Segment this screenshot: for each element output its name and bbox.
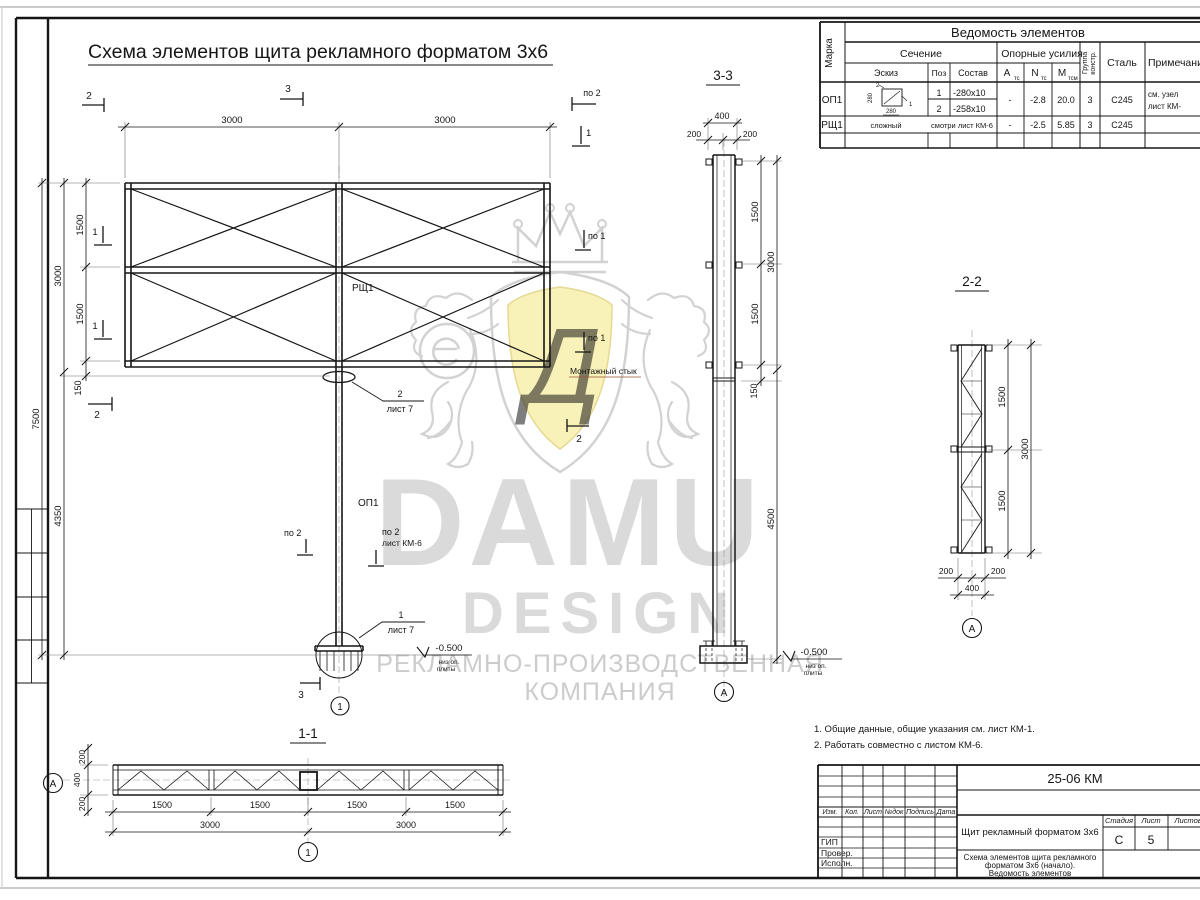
elements-table: Ведомость элементов Марка Сечение Опорны… — [820, 22, 1200, 148]
dim-1500: 1500 — [75, 303, 86, 324]
dim-150: 150 — [749, 383, 759, 398]
cell-marka: РЩ1 — [821, 120, 843, 131]
marker-1: 1 — [92, 321, 97, 332]
dim-3000: 3000 — [200, 820, 220, 830]
dim-7500: 7500 — [31, 408, 42, 429]
dim-3000: 3000 — [53, 265, 64, 286]
marker-2: 2 — [576, 434, 582, 445]
section-3-3: 3-3 400 200 200 1500 — [687, 68, 842, 702]
cell-n: -2.8 — [1030, 95, 1046, 105]
dim-200: 200 — [687, 129, 701, 139]
cell-n: -2.5 — [1030, 120, 1046, 130]
drawing-canvas: Схема элементов щита рекламного форматом… — [0, 0, 1200, 900]
page-title: Схема элементов щита рекламного форматом… — [88, 41, 548, 63]
section-2-2: 2-2 1500 1500 3000 200 — [938, 274, 1042, 638]
col-m-sub: тсм — [1068, 76, 1078, 82]
callout-sheet7: лист 7 — [388, 625, 414, 635]
note-1: 1. Общие данные, общие указания см. лист… — [814, 724, 1035, 735]
notes: 1. Общие данные, общие указания см. лист… — [814, 724, 1035, 751]
role-ispoln: Исполн. — [821, 858, 853, 868]
col-a: А — [1004, 68, 1011, 79]
sheet-desc: Ведомость элементов — [989, 869, 1071, 878]
label-montage-joint: Монтажный стык — [570, 366, 637, 376]
cell-gruppa: 3 — [1087, 95, 1092, 105]
marker-po2: по 2 — [284, 528, 301, 538]
cell-m: 5.85 — [1057, 120, 1075, 130]
col-oporn: Опорные усилия — [1001, 48, 1083, 60]
sketch-dim-280: 280 — [868, 92, 874, 103]
dim-4500: 4500 — [766, 508, 777, 529]
cell-eskiz: сложный — [870, 121, 901, 130]
cell-poz: 2 — [936, 104, 941, 114]
callout-joint: 2 лист 7 — [352, 382, 424, 414]
marker-po2-sheet: лист КМ-6 — [382, 538, 422, 548]
dim-1500: 1500 — [250, 800, 270, 810]
dim-200: 200 — [939, 566, 953, 576]
grid-bubble-a-label: А — [969, 624, 976, 635]
main-view: Схема элементов щита рекламного форматом… — [31, 41, 641, 715]
pole-cross-section — [300, 772, 317, 790]
cell-sostav: -258х10 — [953, 104, 986, 114]
level-note: низ оп. — [806, 663, 827, 670]
label-rsh1: РЩ1 — [352, 283, 374, 294]
col-kol: Кол. — [845, 809, 859, 816]
col-gruppa2: констр. — [1090, 51, 1097, 74]
level-value: -0.500 — [436, 643, 463, 654]
level-mark-main: -0.500 низ оп. плиты — [417, 643, 472, 673]
cell-gruppa: 3 — [1087, 120, 1092, 130]
cell-marka: ОП1 — [822, 95, 843, 106]
section-title-2-2: 2-2 — [962, 274, 982, 289]
marker-2: 2 — [94, 410, 100, 421]
note-2: 2. Работать совместно с листом КМ-6. — [814, 740, 983, 751]
level-mark-3-3: -0.500 низ оп. плиты — [783, 647, 842, 677]
cell-stal: С245 — [1111, 120, 1133, 130]
grid-bubble-1-label: 1 — [305, 848, 311, 859]
col-n-sub: тс — [1041, 76, 1047, 82]
dim-1500: 1500 — [750, 201, 761, 222]
section-1-1: 1-1 200 400 200 А 1500 1500 1500 — [44, 726, 513, 862]
col-a-sub: тс — [1014, 76, 1020, 82]
cell-sostav: -280х10 — [953, 88, 986, 98]
col-marka: Марка — [824, 38, 835, 68]
level-note: низ оп. — [439, 659, 460, 666]
dim-1500: 1500 — [997, 490, 1008, 511]
section-title-1-1: 1-1 — [298, 726, 318, 741]
dim-3000: 3000 — [221, 115, 242, 126]
col-list2: Лист — [1140, 816, 1160, 825]
table-title: Ведомость элементов — [951, 25, 1085, 40]
dim-1500: 1500 — [445, 800, 465, 810]
grid-bubble-a-label: А — [721, 688, 728, 699]
table-row-op1: ОП1 2 1 280 280 1 -280х10 2 -258х10 - -2… — [822, 83, 1182, 115]
col-stal: Сталь — [1107, 57, 1137, 69]
marker-3: 3 — [285, 84, 291, 95]
cell-a: - — [1009, 95, 1012, 105]
col-prim: Примечание — [1148, 57, 1200, 69]
dim-3000: 3000 — [396, 820, 416, 830]
col-list: Лист — [863, 809, 882, 816]
col-stadia: Стадия — [1105, 816, 1133, 825]
col-data: Дата — [936, 809, 956, 816]
dim-1500: 1500 — [152, 800, 172, 810]
marker-1: 1 — [92, 227, 97, 238]
level-value: -0.500 — [801, 647, 828, 658]
marker-po1: по 1 — [588, 333, 605, 343]
marker-po2: по 2 — [583, 88, 600, 98]
callout-1: 1 — [398, 610, 403, 620]
col-poz: Поз — [932, 68, 947, 78]
stiffener-plates — [951, 345, 992, 553]
label-op1: ОП1 — [358, 498, 379, 509]
title-block: 25-06 КМ Изм. Кол. Лист №док Подпись Дат… — [818, 765, 1200, 878]
marker-3: 3 — [298, 690, 304, 701]
dim-1500: 1500 — [997, 386, 1008, 407]
col-listov: Листов — [1173, 816, 1200, 825]
dim-200: 200 — [743, 129, 757, 139]
marker-po1: по 1 — [588, 231, 605, 241]
dim-400: 400 — [72, 773, 82, 787]
marker-po2: по 2 — [382, 527, 399, 537]
callout-base: 1 лист 7 — [359, 610, 425, 638]
cell-a: - — [1009, 120, 1012, 130]
dim-200: 200 — [991, 566, 1005, 576]
level-note: плиты — [804, 670, 823, 677]
list-value: 5 — [1148, 833, 1155, 847]
marker-2: 2 — [86, 91, 92, 102]
dim-400: 400 — [714, 111, 729, 121]
grid-bubble-1-label: 1 — [337, 702, 343, 713]
dim-3000: 3000 — [1020, 438, 1031, 459]
callout-sheet7: лист 7 — [387, 404, 413, 414]
dim-3000: 3000 — [434, 115, 455, 126]
section-title-3-3: 3-3 — [713, 68, 733, 83]
col-sostav: Состав — [958, 68, 988, 78]
col-podpis: Подпись — [906, 808, 934, 816]
col-m: М — [1058, 68, 1066, 79]
object-name: Щит рекламный форматом 3х6 — [961, 827, 1098, 838]
dim-400: 400 — [965, 583, 979, 593]
col-sechenie: Сечение — [900, 48, 942, 60]
dim-150: 150 — [73, 380, 83, 395]
dim-200: 200 — [77, 797, 87, 811]
level-note: плиты — [437, 666, 456, 673]
callout-2: 2 — [397, 389, 402, 399]
sketch-callout-1: 1 — [909, 102, 913, 108]
base-plate — [700, 646, 747, 663]
col-ndok: №док — [885, 808, 904, 816]
dim-1500: 1500 — [75, 214, 86, 235]
section-markers: 2 1 1 3 по 2 1 по 1 по 1 2 2 — [82, 84, 605, 701]
dim-3000: 3000 — [766, 251, 777, 272]
col-n: N — [1031, 68, 1038, 79]
role-gip: ГИП — [821, 837, 838, 847]
dim-1500: 1500 — [750, 303, 761, 324]
role-prover: Провер. — [821, 848, 853, 858]
col-eskiz: Эскиз — [874, 68, 898, 78]
dim-200: 200 — [77, 750, 87, 764]
dim-1500: 1500 — [347, 800, 367, 810]
cell-prim: лист КМ- — [1148, 102, 1181, 111]
col-izm: Изм. — [823, 809, 838, 816]
doc-code: 25-06 КМ — [1047, 771, 1102, 786]
sketch-dim-280: 280 — [886, 109, 897, 115]
marker-1: 1 — [586, 128, 591, 139]
dim-4350: 4350 — [53, 505, 64, 526]
grid-bubble-a-label: А — [50, 779, 57, 790]
cell-poz: 1 — [936, 88, 941, 98]
sketch-callout-2: 2 — [876, 83, 880, 89]
cell-m: 20.0 — [1057, 95, 1075, 105]
cell-sostav: смотри лист КМ-6 — [931, 121, 993, 130]
drawing-sheet: Д DAMU DESIGN — [0, 0, 1200, 900]
col-gruppa: Группа — [1082, 52, 1089, 74]
cell-stal: С245 — [1111, 95, 1133, 105]
cell-prim: см. узел — [1148, 90, 1179, 99]
stadia-value: С — [1115, 833, 1124, 847]
table-row-rsh1: РЩ1 сложный смотри лист КМ-6 - -2.5 5.85… — [821, 120, 1133, 131]
